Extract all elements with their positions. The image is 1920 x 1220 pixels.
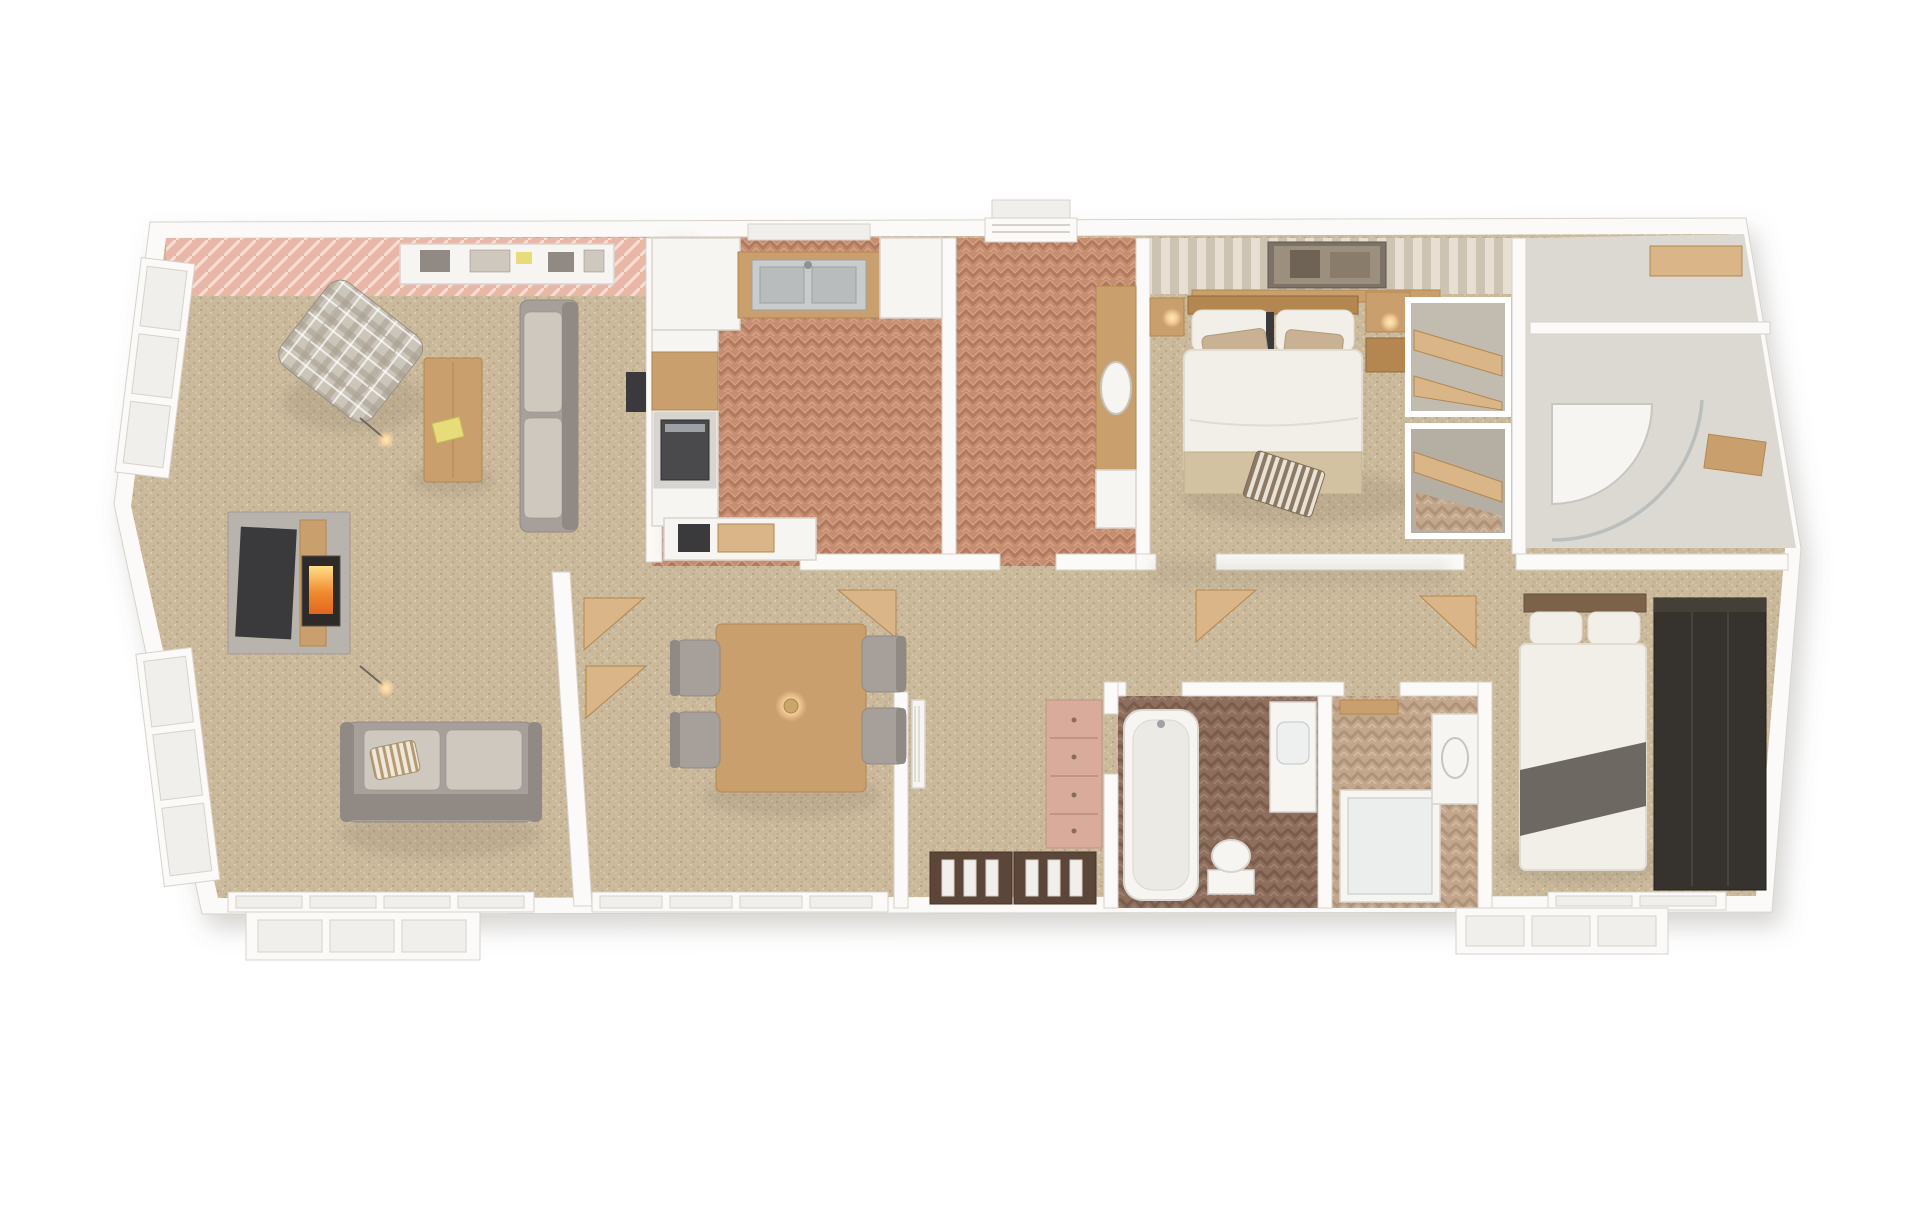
wall-dressing-ensuite — [1512, 238, 1526, 554]
kitchen-cupboard-topleft — [652, 238, 740, 330]
wall-kitchen-utility — [942, 238, 956, 566]
pillow-2a — [1530, 612, 1582, 644]
shower-room-basin — [1432, 714, 1478, 804]
sideboard-box-4 — [584, 250, 604, 272]
double-bed-master — [1184, 296, 1362, 518]
bath-faucet — [1157, 720, 1165, 728]
utility-sink — [1101, 362, 1131, 414]
wardrobe-shelf-unit-bottom — [1408, 426, 1508, 536]
chest-of-drawers — [1046, 700, 1102, 848]
hanging-lamp-right — [1380, 312, 1400, 332]
wall-kitchen-south-b — [1056, 554, 1136, 570]
dining-chair-4 — [862, 708, 906, 764]
wall-ensuite-divider — [1530, 322, 1770, 334]
wall-tv-dining-side — [626, 372, 646, 412]
oven — [654, 412, 716, 488]
pillow-2b — [1588, 612, 1640, 644]
kitchen-worktop-left — [652, 352, 718, 410]
porch-steps-left — [246, 912, 480, 960]
patio-windows-dining — [592, 892, 888, 912]
lounge-sofa — [340, 722, 542, 822]
wall-corridor-south-c — [1400, 682, 1478, 696]
hanging-lamp-left — [1162, 308, 1182, 328]
corner-unit-right — [1366, 338, 1410, 372]
patio-windows-living — [228, 892, 534, 912]
bathtub — [1124, 710, 1198, 900]
dining-chair-1 — [670, 640, 720, 696]
dark-wardrobe — [1654, 598, 1766, 890]
log-burner — [302, 556, 340, 626]
ensuite-vanity — [1704, 434, 1766, 476]
wardrobe-shelf-unit-top — [1408, 300, 1508, 414]
rear-door-step — [992, 200, 1070, 220]
kitchen-sink — [752, 260, 866, 310]
window-second-bedroom — [1548, 892, 1726, 910]
coffee-table — [424, 358, 482, 482]
wall-utility-master — [1136, 238, 1150, 566]
wall-shower-bed2 — [1478, 682, 1492, 908]
tv-screen — [235, 527, 297, 640]
sideboard-accent — [516, 252, 532, 264]
headboard-2 — [1524, 594, 1646, 612]
corner-sofa — [520, 300, 578, 532]
dining-chair-2 — [670, 712, 720, 768]
built-in-appliance — [678, 524, 710, 552]
tv-media-wall — [228, 512, 350, 654]
floorplan-canvas — [0, 0, 1920, 1220]
rear-door — [985, 218, 1077, 242]
shower-cubicle — [1340, 790, 1440, 902]
vanity-basin — [1270, 702, 1316, 812]
sideboard-box-1 — [420, 250, 450, 272]
faucet — [804, 261, 812, 269]
porch-steps-right — [1456, 908, 1668, 954]
sideboard-box-3 — [548, 252, 574, 272]
ensuite-shelf — [1650, 246, 1742, 276]
kitchen-window — [748, 224, 870, 240]
dining-chair-3 — [862, 636, 906, 692]
wall-bath-shower — [1318, 696, 1332, 908]
floorplan-svg — [0, 0, 1920, 1220]
dining-table — [716, 624, 866, 792]
wall-corridor-south-a — [1118, 682, 1126, 696]
wall-master-south-c — [1516, 554, 1788, 570]
cabinet-wood-niche — [718, 524, 774, 552]
sideboard-box-2 — [470, 250, 510, 272]
wall-kitchen-south-a — [800, 554, 1000, 570]
sideboard — [400, 244, 614, 284]
wall-hall-bath-b — [1104, 774, 1118, 908]
kitchen-base-cabinet — [664, 518, 816, 560]
radiator — [912, 700, 925, 788]
picture-frame — [1268, 242, 1386, 288]
shower-room-shelf — [1340, 700, 1398, 714]
kitchen-cupboard-topright — [880, 238, 942, 318]
wall-hall-bath-a — [1104, 682, 1118, 714]
wall-corridor-south-b — [1182, 682, 1344, 696]
washing-machine — [1096, 470, 1136, 528]
